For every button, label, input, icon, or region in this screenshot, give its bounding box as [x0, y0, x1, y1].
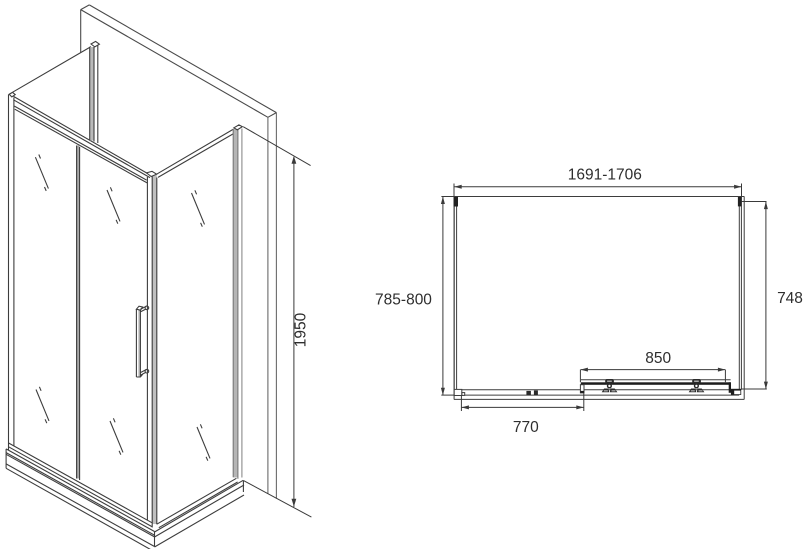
svg-text:1691-1706: 1691-1706	[568, 167, 642, 184]
svg-text:770: 770	[513, 419, 539, 436]
svg-text:850: 850	[645, 350, 671, 367]
svg-text:748: 748	[777, 290, 803, 307]
svg-text:1950: 1950	[293, 312, 310, 347]
svg-text:785-800: 785-800	[375, 291, 432, 308]
